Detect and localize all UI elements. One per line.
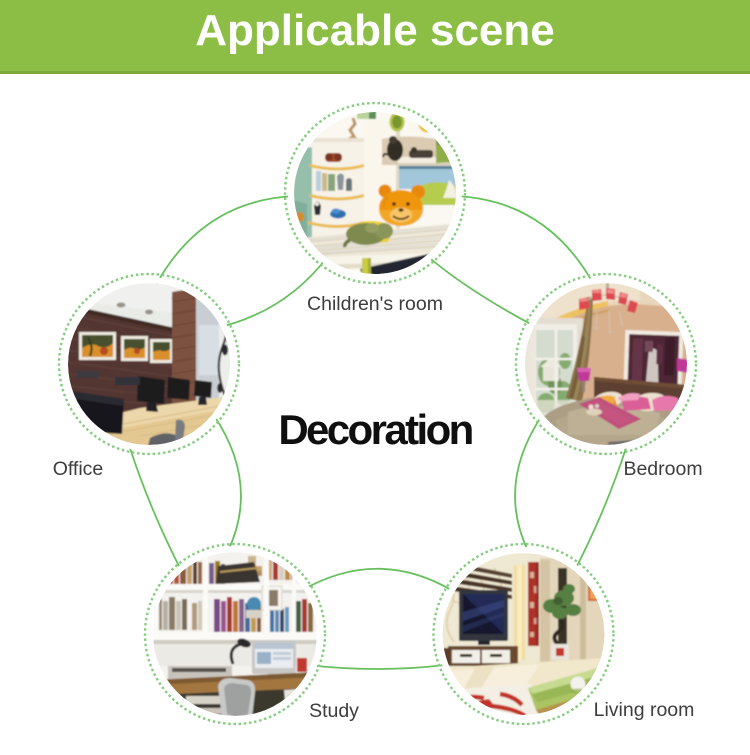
- svg-text:Decoration: Decoration: [278, 406, 472, 453]
- svg-text:Living room: Living room: [594, 699, 695, 721]
- svg-text:Study: Study: [309, 700, 359, 722]
- svg-text:Applicable scene: Applicable scene: [195, 6, 554, 55]
- svg-text:Bedroom: Bedroom: [623, 458, 702, 480]
- svg-text:Office: Office: [53, 458, 104, 480]
- svg-text:Children's room: Children's room: [307, 293, 443, 315]
